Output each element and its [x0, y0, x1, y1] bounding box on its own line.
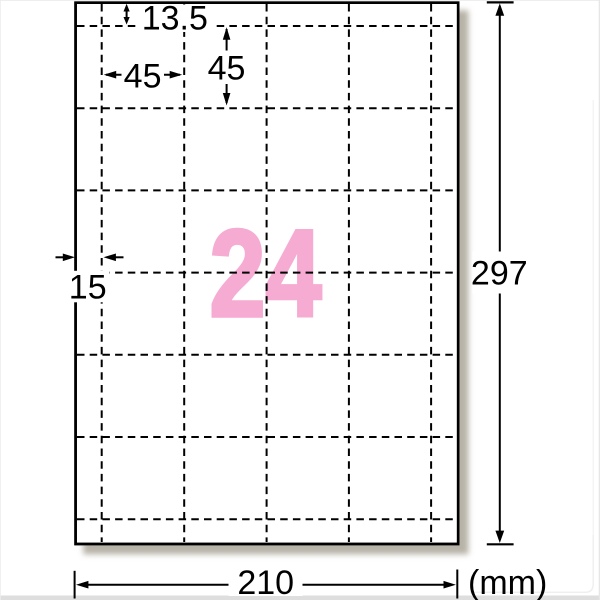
svg-text:45: 45 [124, 58, 162, 96]
svg-text:15: 15 [69, 268, 107, 306]
svg-text:13.5: 13.5 [142, 0, 208, 37]
svg-text:45: 45 [208, 49, 246, 87]
svg-text:297: 297 [471, 254, 528, 292]
svg-text:210: 210 [237, 564, 294, 600]
svg-text:(mm): (mm) [468, 564, 547, 600]
